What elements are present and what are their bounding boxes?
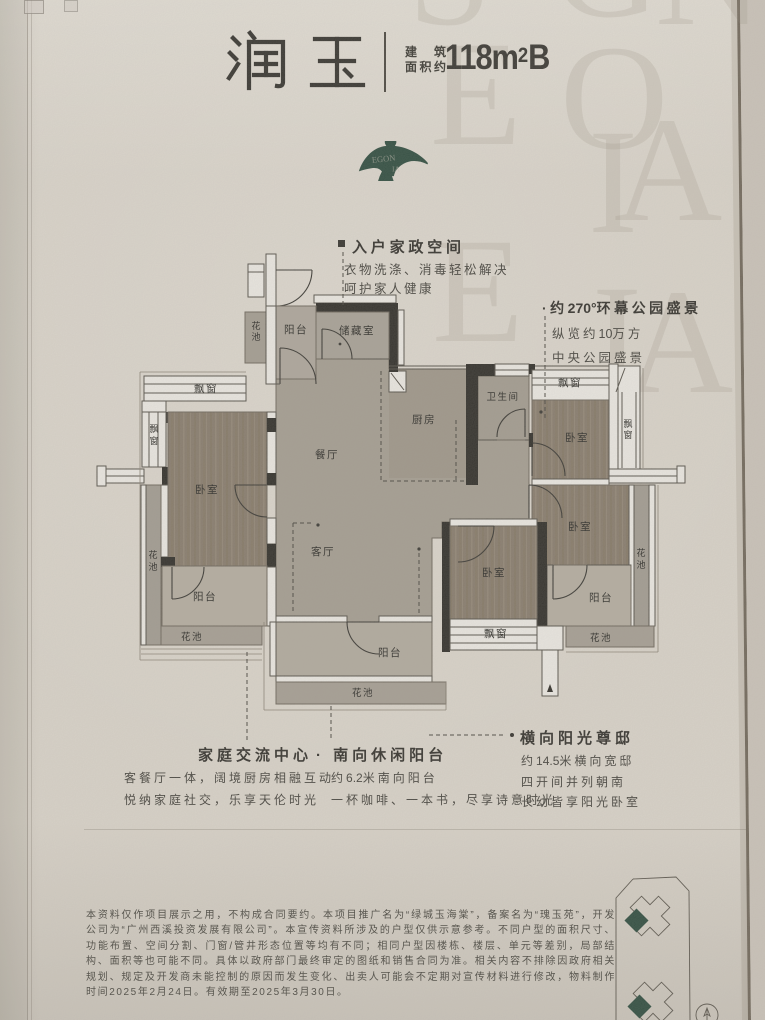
- svg-text:餐厅: 餐厅: [315, 448, 339, 461]
- svg-text:窗: 窗: [149, 435, 158, 446]
- svg-text:卧室: 卧室: [482, 566, 506, 579]
- svg-text:花池: 花池: [181, 631, 203, 643]
- svg-text:池: 池: [636, 559, 645, 570]
- svg-text:阳台: 阳台: [589, 591, 613, 604]
- svg-text:飘窗: 飘窗: [558, 376, 582, 389]
- svg-text:厨房: 厨房: [412, 413, 436, 426]
- svg-text:飘窗: 飘窗: [484, 627, 508, 640]
- svg-text:池: 池: [251, 331, 260, 342]
- svg-text:花池: 花池: [352, 687, 374, 699]
- svg-text:窗: 窗: [623, 429, 632, 440]
- svg-text:卧室: 卧室: [195, 483, 219, 496]
- svg-text:卫生间: 卫生间: [486, 391, 519, 403]
- svg-text:花池: 花池: [590, 632, 612, 644]
- svg-text:卧室: 卧室: [568, 520, 592, 533]
- svg-text:客厅: 客厅: [311, 545, 335, 558]
- svg-text:阳台: 阳台: [193, 590, 217, 603]
- svg-text:飘: 飘: [623, 419, 632, 429]
- svg-text:池: 池: [148, 561, 157, 572]
- svg-text:飘窗: 飘窗: [194, 382, 218, 395]
- svg-text:花: 花: [148, 549, 157, 560]
- svg-text:储藏室: 储藏室: [339, 324, 375, 337]
- svg-text:花: 花: [251, 320, 260, 331]
- svg-text:阳台: 阳台: [284, 323, 308, 336]
- svg-text:花: 花: [636, 547, 645, 558]
- svg-text:卧室: 卧室: [565, 431, 589, 444]
- svg-text:阳台: 阳台: [378, 646, 402, 659]
- svg-text:飘: 飘: [149, 424, 158, 434]
